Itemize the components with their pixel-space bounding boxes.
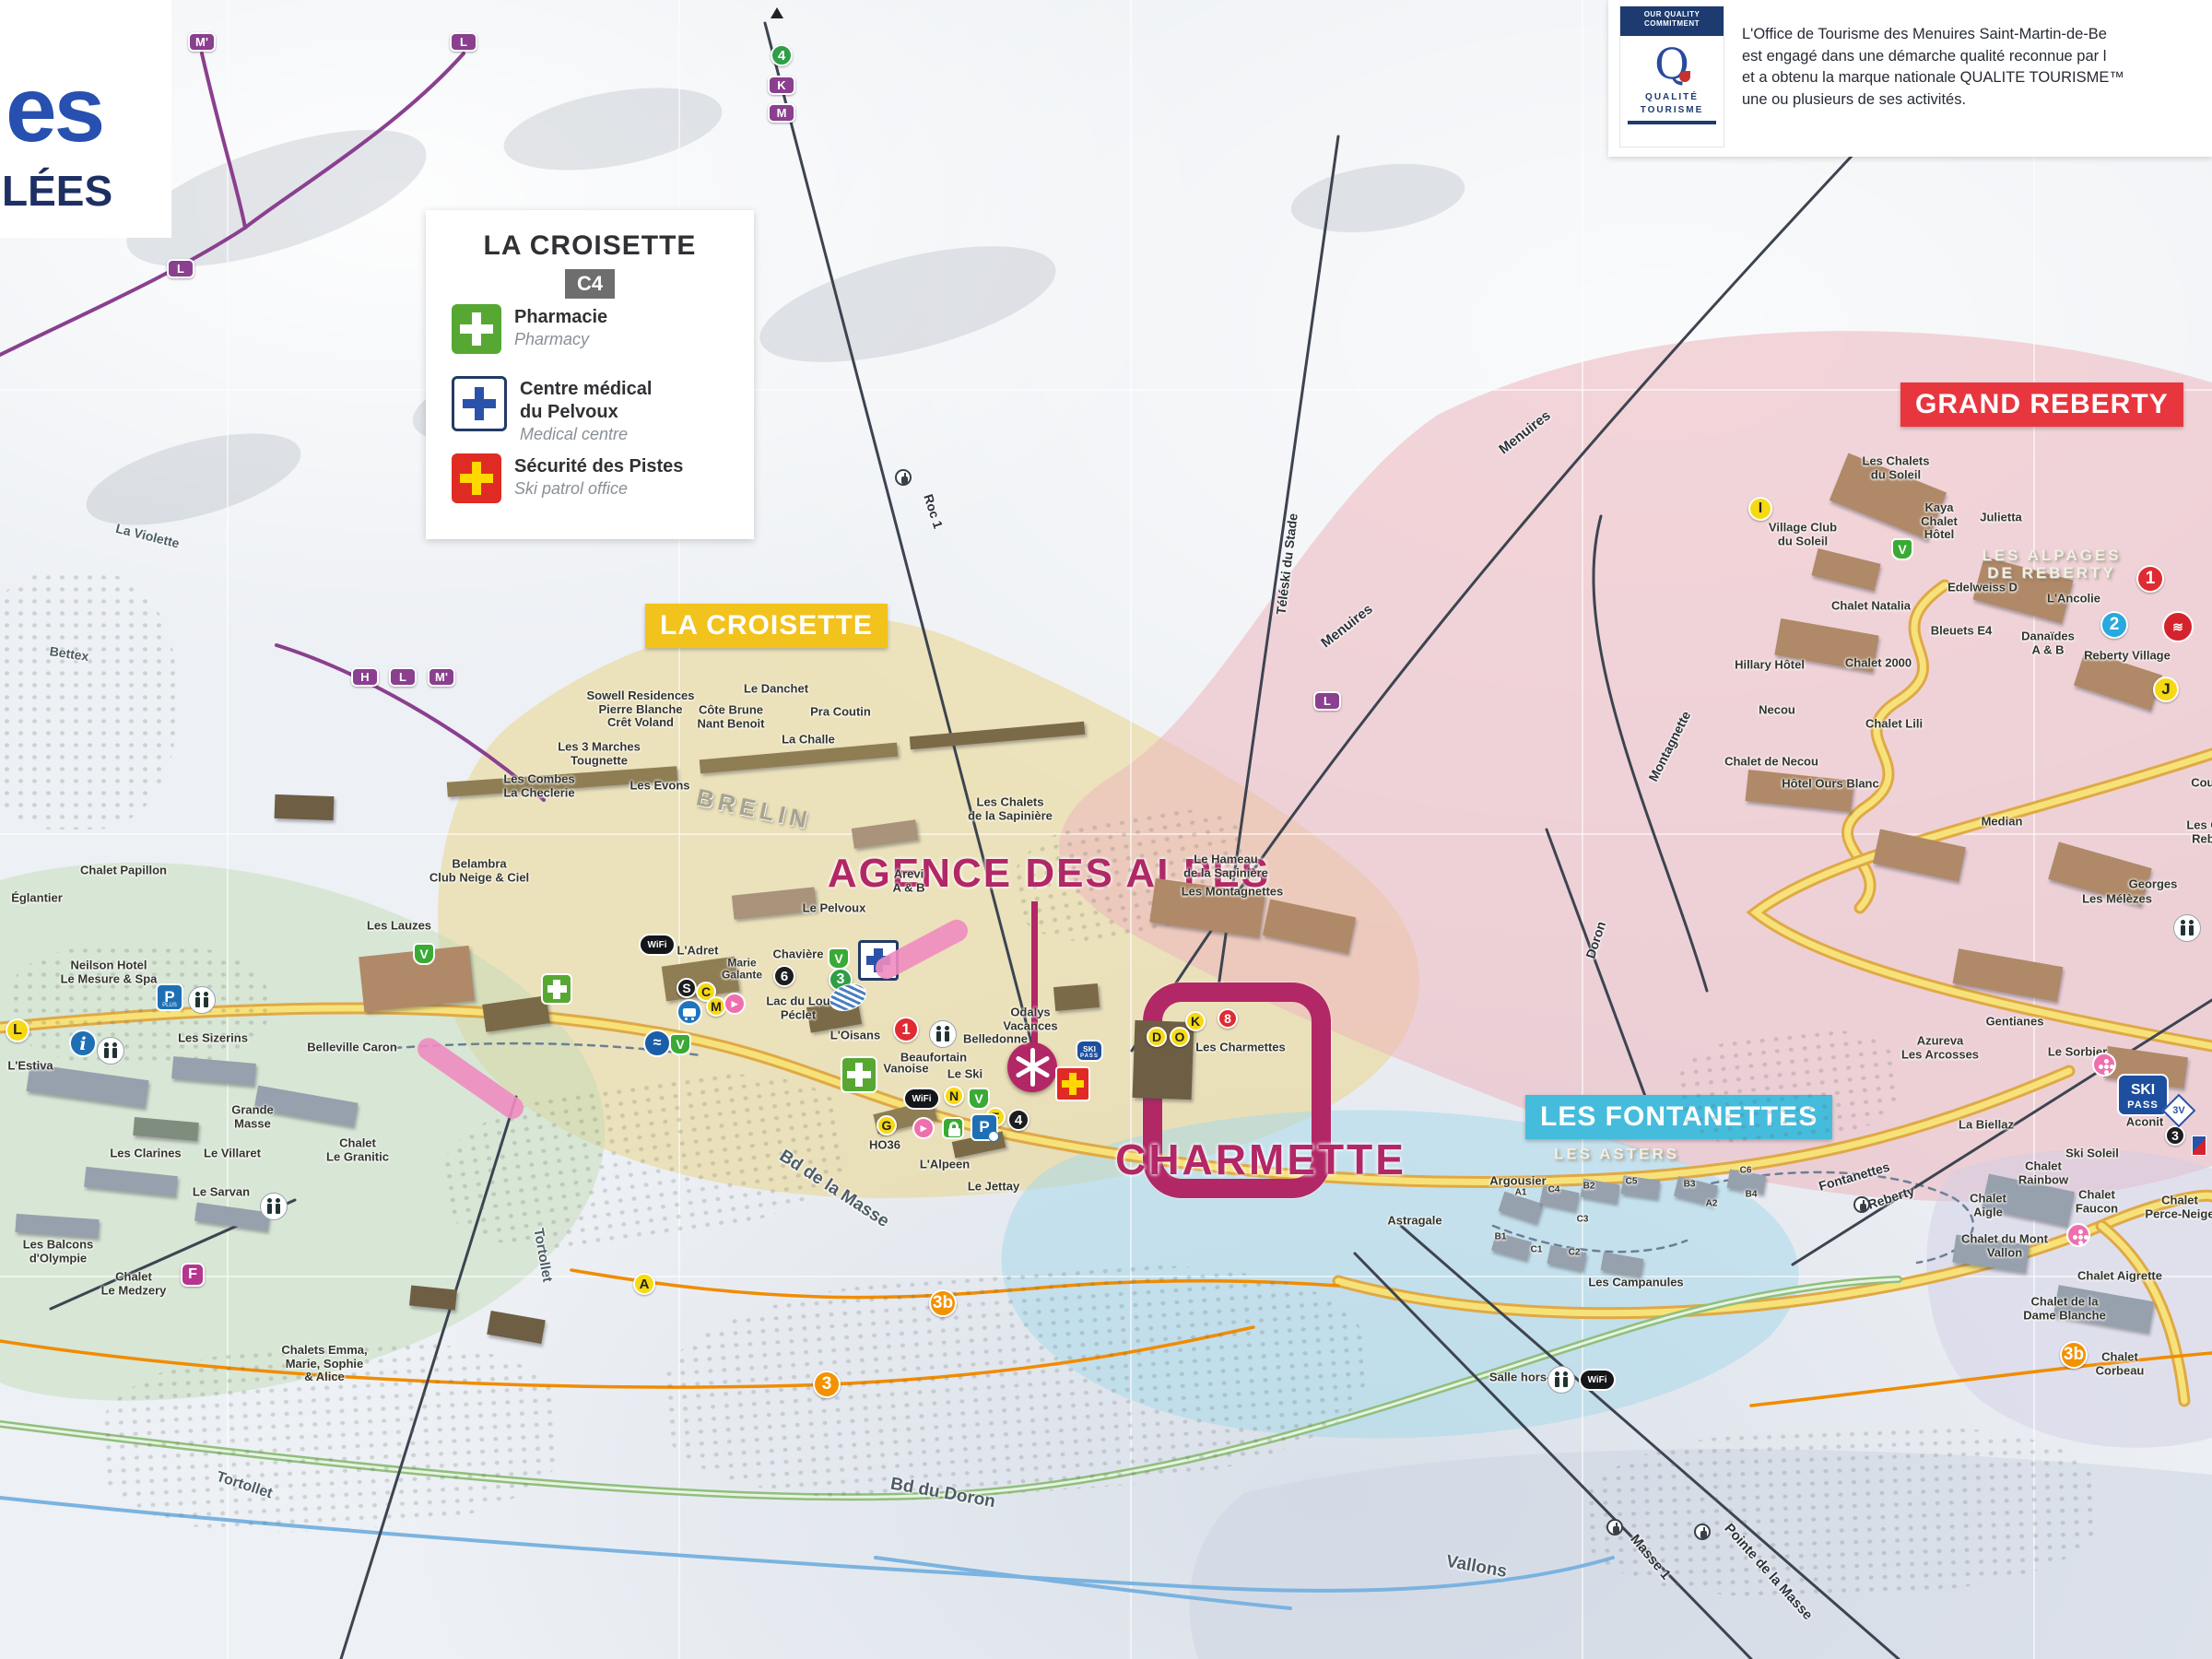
- map-label-kaya: KayaChaletHôtel: [1921, 501, 1958, 542]
- map-label-a1: A1: [1515, 1187, 1527, 1197]
- map-label-les-montagnettes: Les Montagnettes: [1182, 886, 1284, 900]
- toilets-icon: [929, 1020, 957, 1048]
- map-label-les-clarines: Les Clarines: [110, 1147, 181, 1161]
- badge-m': M': [428, 667, 455, 687]
- quality-statement: L'Office de Tourisme des Menuires Saint-…: [1742, 24, 2124, 111]
- map-label-l-ancolie: L'Ancolie: [2047, 593, 2100, 606]
- map-label-reberty-village: Reberty Village: [2084, 650, 2171, 664]
- toilets-icon: [260, 1193, 288, 1220]
- badge-f: F: [181, 1263, 205, 1287]
- village-v-icon: V: [413, 943, 435, 965]
- toilets-icon: [188, 986, 216, 1014]
- forest-texture: [0, 571, 175, 829]
- badge-4: 4: [771, 44, 793, 66]
- club-flag-icon: [2192, 1135, 2206, 1156]
- red-stamp-logo: ≋: [2162, 611, 2194, 642]
- legend-item-label: Centre médical: [520, 378, 652, 401]
- badge-l: L: [450, 32, 477, 52]
- badge-l: L: [6, 1018, 29, 1042]
- map-label-cours: Cours: [2191, 777, 2212, 791]
- ski-pass-icon: SKIPASS: [1076, 1040, 1103, 1063]
- legend-item-label2: du Pelvoux: [520, 401, 652, 424]
- legend-item-label-en: Medical centre: [520, 424, 652, 445]
- badge-4: 4: [1007, 1109, 1030, 1131]
- terrain-shading: [749, 223, 1066, 386]
- map-label-les-sizerins: Les Sizerins: [178, 1032, 248, 1046]
- map-label-bleuets-e4: Bleuets E4: [1931, 625, 1992, 639]
- map-label-chalet: ChaletCorbeau: [2096, 1350, 2145, 1377]
- village-v-icon: V: [669, 1033, 691, 1055]
- map-label-c-te-brune: Côte BruneNant Benoit: [698, 703, 765, 730]
- resort-logo-subtext: LÉES: [2, 166, 112, 216]
- map-label-necou: Necou: [1759, 704, 1795, 718]
- legend-grid-badge: C4: [565, 269, 615, 299]
- map-label-la-challe: La Challe: [782, 734, 835, 747]
- badge-m': M': [188, 32, 216, 52]
- flower-icon: [2066, 1223, 2090, 1247]
- map-label-sowell-residences: Sowell ResidencesPierre BlancheCrêt Vola…: [586, 689, 694, 730]
- legend-title: LA CROISETTE: [426, 230, 754, 262]
- legend-item-label: Pharmacie: [514, 306, 607, 329]
- badge-1: 1: [893, 1017, 919, 1042]
- legend-item-label: Sécurité des Pistes: [514, 455, 683, 478]
- map-label-ho36: HO36: [869, 1139, 900, 1153]
- map-label-chalet: ChaletRainbow: [2018, 1159, 2068, 1186]
- flower-icon: [2092, 1053, 2116, 1077]
- map-label-le-ski: Le Ski: [947, 1068, 982, 1082]
- map-label-chalet-papillon: Chalet Papillon: [80, 865, 167, 878]
- map-label-chalet: ChaletLe Granitic: [326, 1136, 389, 1163]
- charmette-label: CHARMETTE: [1115, 1135, 1406, 1184]
- map-label-argousier: Argousier: [1489, 1175, 1546, 1189]
- parking-icon: P: [971, 1113, 998, 1141]
- map-label-chalet: ChaletLe Medzery: [101, 1270, 167, 1297]
- map-label-les-m-l-zes: Les Mélèzes: [2082, 893, 2152, 907]
- badge-l: L: [167, 259, 194, 278]
- bus-icon: [677, 999, 702, 1025]
- map-label-c4: C4: [1548, 1184, 1560, 1194]
- map-label-vanoise: Vanoise: [883, 1063, 928, 1077]
- badge-k: K: [768, 76, 795, 95]
- wifi-icon: WiFi: [1579, 1369, 1616, 1391]
- village-v-icon: V: [828, 947, 850, 970]
- map-label-odalys: OdalysVacances: [1003, 1006, 1057, 1032]
- legend-panel: LA CROISETTE C4 Pharmacie Pharmacy Centr…: [426, 210, 754, 539]
- terrain-shading: [498, 74, 728, 184]
- map-label-dana-des: DanaïdesA & B: [2021, 629, 2075, 656]
- map-label-les-asters: LES ASTERS: [1554, 1145, 1679, 1162]
- badge-m: M: [768, 103, 795, 123]
- quality-tourism-panel: OUR QUALITYCOMMITMENT Q QUALITÉTOURISME …: [1608, 0, 2212, 157]
- sledging-icon: ▸: [912, 1117, 935, 1139]
- map-label-les-campanules: Les Campanules: [1588, 1277, 1683, 1290]
- qualite-q-icon: Q: [1620, 36, 1724, 91]
- pharmacy-cross-icon: [841, 1056, 877, 1093]
- badge-s: S: [677, 978, 697, 998]
- terrain-shading: [77, 415, 311, 543]
- wifi-icon: WiFi: [903, 1088, 940, 1110]
- toilets-icon: [1547, 1366, 1575, 1394]
- map-label-chalet-de-la: Chalet de laDame Blanche: [2023, 1295, 2106, 1322]
- legend-item-label-en: Ski patrol office: [514, 478, 683, 500]
- map-label-edelweiss-d: Edelweiss D: [1947, 582, 2018, 595]
- map-label-arevi: AreviA & B: [893, 867, 925, 894]
- map-label-chalet-du-mont: Chalet du MontVallon: [1961, 1232, 2048, 1259]
- map-label-l-adret: L'Adret: [677, 945, 719, 959]
- toilets-icon: [97, 1037, 124, 1065]
- map-label-chalet: ChaletPerce-Neige: [2145, 1194, 2212, 1220]
- map-label-a2: A2: [1706, 1198, 1718, 1208]
- ski-resort-map: es LÉES LA CROISETTE C4 Pharmacie Pharma…: [0, 0, 2212, 1659]
- map-label-chalet-lili: Chalet Lili: [1865, 718, 1923, 732]
- legend-item-label-en: Pharmacy: [514, 329, 607, 350]
- pharmacy-cross-icon: [452, 304, 501, 354]
- map-label-les-alpages: LES ALPAGESDE REBERTY: [1982, 547, 2121, 582]
- map-label-c2: C2: [1569, 1247, 1581, 1257]
- map-label-le-jettay: Le Jettay: [968, 1181, 1019, 1194]
- badge-n: N: [944, 1086, 964, 1106]
- map-label-le-danchet: Le Danchet: [744, 683, 808, 697]
- map-label-c5: C5: [1626, 1176, 1638, 1186]
- zone-ribbon-grand-reberty: GRAND REBERTY: [1900, 382, 2183, 427]
- badge-2: 2: [2100, 611, 2128, 639]
- qualite-tourisme-logo: OUR QUALITYCOMMITMENT Q QUALITÉTOURISME: [1619, 6, 1724, 147]
- map-label-les-3-marches: Les 3 MarchesTougnette: [558, 740, 641, 767]
- map-label-village-club: Village Clubdu Soleil: [1769, 521, 1837, 547]
- map-label-le-pelvoux: Le Pelvoux: [803, 902, 866, 916]
- map-label-b1: B1: [1495, 1231, 1507, 1241]
- badge-3b: 3b: [929, 1289, 957, 1317]
- map-label-chalets-emma-: Chalets Emma,Marie, Sophie& Alice: [281, 1344, 367, 1384]
- map-label-azureva: AzurevaLes Arcosses: [1901, 1034, 1979, 1061]
- map-label-belambra: BelambraClub Neige & Ciel: [429, 857, 529, 884]
- badge-3: 3: [2165, 1125, 2185, 1146]
- map-label-lac-du-lou: Lac du LouPéclet: [766, 994, 829, 1021]
- building-shape: [275, 794, 335, 820]
- pool-icon: ≈: [643, 1030, 671, 1057]
- snowflake-medallion-icon: [1007, 1042, 1057, 1092]
- map-label-b4: B4: [1746, 1189, 1758, 1199]
- legend-item-pharmacy: Pharmacie Pharmacy: [452, 304, 607, 354]
- map-label-belledonne: Belledonne: [963, 1033, 1028, 1047]
- village-v-icon: V: [968, 1088, 990, 1110]
- badge-d: D: [1147, 1027, 1167, 1047]
- map-label-median: Median: [1982, 816, 2023, 829]
- gondola-icon: [1853, 1196, 1870, 1213]
- qualite-tourisme-wordmark: QUALITÉTOURISME: [1620, 91, 1724, 116]
- map-label-les-combes: Les CombesLa Checlerie: [503, 772, 574, 799]
- map-label-le-villaret: Le Villaret: [204, 1147, 261, 1161]
- map-label-les-balcons: Les Balconsd'Olympie: [23, 1238, 94, 1265]
- map-label-la-biellaz: La Biellaz: [1959, 1119, 2014, 1133]
- map-label-hillary-h-tel: Hillary Hôtel: [1735, 659, 1805, 673]
- pharmacy-cross-icon: [541, 973, 572, 1005]
- badge-i: I: [1748, 497, 1772, 521]
- resort-logo-text: es: [6, 57, 102, 163]
- map-label-b3: B3: [1684, 1179, 1696, 1189]
- badge-j: J: [2153, 677, 2179, 702]
- badge-6: 6: [773, 965, 795, 987]
- map-label-julietta: Julietta: [1980, 512, 2022, 525]
- parking-icon: PPLUS: [156, 983, 183, 1011]
- badge-o: O: [1170, 1027, 1190, 1047]
- badge-h: H: [351, 667, 379, 687]
- map-label-l-oisans: L'Oisans: [830, 1030, 880, 1043]
- map-label-chalet-de-necou: Chalet de Necou: [1724, 756, 1818, 770]
- map-label-les-chalets: Les Chaletsde la Sapinière: [968, 795, 1053, 822]
- map-label-aconit: Aconit: [2126, 1116, 2163, 1130]
- map-label-h-tel-ours-blanc: Hôtel Ours Blanc: [1782, 778, 1878, 792]
- info-icon: i: [69, 1030, 97, 1057]
- badge-k: K: [1185, 1011, 1206, 1031]
- lift-arrow-icon: [771, 7, 783, 18]
- building-shape: [1053, 983, 1100, 1011]
- wifi-icon: WiFi: [639, 934, 676, 956]
- resort-logo: es LÉES: [0, 0, 171, 238]
- map-label-ski-soleil: Ski Soleil: [2065, 1147, 2119, 1161]
- map-label-les-co: Les CoRebe: [2186, 818, 2212, 845]
- map-label-chalet-2000: Chalet 2000: [1845, 657, 1912, 671]
- sledging-icon: ▸: [724, 993, 746, 1015]
- map-label-l-estiva: L'Estiva: [7, 1060, 53, 1074]
- map-label-chalet-natalia: Chalet Natalia: [1831, 600, 1911, 614]
- gondola-icon: [1694, 1524, 1711, 1540]
- map-label-neilson-hotel: Neilson HotelLe Mesure & Spa: [61, 959, 158, 985]
- badge-l: L: [1313, 691, 1341, 711]
- village-v-icon: V: [1891, 538, 1913, 560]
- map-label-b2: B2: [1583, 1181, 1595, 1191]
- map-label-georges: Georges: [2129, 878, 2178, 892]
- badge-a: A: [633, 1273, 655, 1295]
- badge-l: L: [389, 667, 417, 687]
- medical-cross-icon: [452, 376, 507, 431]
- map-label-marie: MarieGalante: [722, 958, 762, 982]
- map-label-les-chalets: Les Chaletsdu Soleil: [1863, 454, 1930, 481]
- map-label-les-evons: Les Evons: [629, 780, 689, 794]
- map-label-grande: GrandeMasse: [231, 1103, 274, 1130]
- legend-item-medical-centre: Centre médical du Pelvoux Medical centre: [452, 376, 652, 445]
- badge-3b: 3b: [2060, 1341, 2088, 1369]
- gondola-icon: [895, 469, 912, 486]
- map-label-le-hameau: Le Hameaude la Sapinière: [1183, 853, 1268, 879]
- ski-patrol-cross-icon: [1055, 1066, 1090, 1101]
- ski-patrol-cross-icon: [452, 453, 501, 503]
- map-label-belleville-caron: Belleville Caron: [307, 1041, 397, 1055]
- toilets-icon: [2173, 914, 2201, 942]
- map-label-c6: C6: [1740, 1165, 1752, 1175]
- map-label-astragale: Astragale: [1387, 1215, 1441, 1229]
- locker-icon: [942, 1117, 964, 1139]
- map-label-le-sarvan: Le Sarvan: [193, 1186, 250, 1200]
- map-label-l-alpeen: L'Alpeen: [920, 1159, 970, 1172]
- map-label-gentianes: Gentianes: [1986, 1016, 2044, 1030]
- map-label--glantier: Églantier: [11, 892, 63, 906]
- map-label-les-lauzes: Les Lauzes: [367, 920, 431, 934]
- map-label-c3: C3: [1577, 1214, 1589, 1224]
- badge-1: 1: [2136, 565, 2164, 593]
- zone-ribbon-la-croisette: LA CROISETTE: [645, 604, 888, 648]
- badge-3: 3: [813, 1371, 841, 1398]
- map-label-les-charmettes: Les Charmettes: [1195, 1041, 1286, 1055]
- quality-banner: OUR QUALITYCOMMITMENT: [1620, 6, 1724, 36]
- legend-item-ski-patrol: Sécurité des Pistes Ski patrol office: [452, 453, 683, 503]
- map-label-c1: C1: [1531, 1244, 1543, 1254]
- badge-8: 8: [1218, 1008, 1238, 1029]
- map-label-chalet: ChaletAigle: [1970, 1192, 2006, 1218]
- map-label-chalet-aigrette: Chalet Aigrette: [2077, 1270, 2162, 1284]
- terrain-shading: [1287, 154, 1469, 242]
- map-label-chalet: ChaletFaucon: [2076, 1188, 2118, 1215]
- badge-g: G: [877, 1115, 897, 1135]
- map-label-chavi-re: Chavière: [773, 948, 824, 962]
- gondola-icon: [1606, 1519, 1623, 1535]
- map-label-pra-coutin: Pra Coutin: [810, 706, 871, 720]
